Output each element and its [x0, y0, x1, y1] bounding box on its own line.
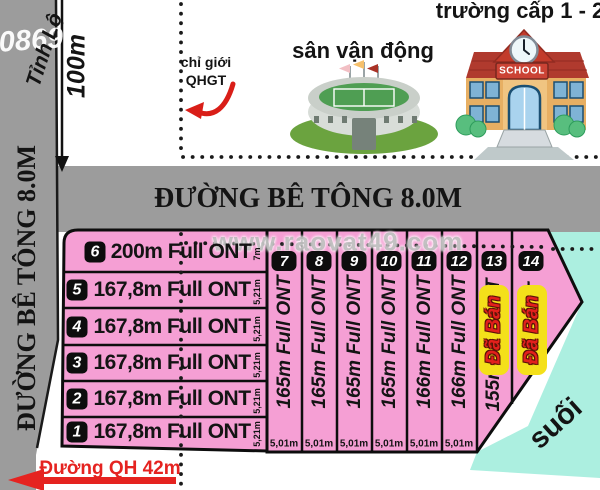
school-label: trường cấp 1 - 2	[436, 0, 600, 24]
plot-5-label: 167,8m Full ONT	[93, 278, 250, 302]
plot-7-label: 165m Full ONT	[274, 275, 296, 408]
planned-road-label: Đường QH 42m	[39, 458, 180, 480]
boundary-arrow-icon	[185, 84, 233, 119]
school-icon	[456, 30, 589, 160]
plot-12-label: 166m Full ONT	[449, 275, 471, 408]
plot-9-label: 165m Full ONT	[344, 275, 366, 408]
school-sign-label: SCHOOL	[499, 66, 545, 77]
plot-2-badge: 2	[67, 389, 88, 410]
boundary-label-line1: chỉ giới	[181, 54, 231, 70]
plot-5-badge: 5	[67, 280, 88, 301]
distance-100m-label: 100m	[63, 34, 92, 98]
plot-1-width: 5,21m	[252, 421, 262, 447]
plot-6-width: 7m	[252, 247, 262, 260]
plot-9-width: 5,01m	[340, 439, 368, 450]
plot-6-badge: 6	[85, 242, 106, 263]
plot-6-label: 200m Full ONT	[111, 240, 252, 264]
stadium-icon	[290, 60, 438, 154]
plot-1-label: 167,8m Full ONT	[93, 420, 250, 444]
plot-11-width: 5,01m	[410, 439, 438, 450]
plot-10-label: 165m Full ONT	[379, 275, 401, 408]
plot-9-badge: 9	[342, 251, 367, 271]
plot-7-width: 5,01m	[270, 439, 298, 450]
land-plot-map: 0869 www.raovat49.com ĐƯỜNG BÊ TÔNG 8.0M…	[0, 0, 600, 490]
plot-3-badge: 3	[67, 353, 88, 374]
plot-12-width: 5,01m	[445, 439, 473, 450]
plot-10-badge: 10	[377, 251, 402, 271]
plot-12-badge: 12	[447, 251, 472, 271]
plot-5-width: 5,21m	[252, 279, 262, 305]
road-vertical-label: ĐƯỜNG BÊ TÔNG 8.0M	[12, 145, 42, 431]
plot-8-badge: 8	[307, 251, 332, 271]
plot-8-width: 5,01m	[305, 439, 333, 450]
stadium-label: sân vận động	[292, 38, 434, 64]
plot-8-label: 165m Full ONT	[309, 275, 331, 408]
plot-4-label: 167,8m Full ONT	[93, 315, 250, 339]
sold-sticker-plot-13: Đã Bán	[479, 285, 509, 375]
plot-7-badge: 7	[272, 251, 297, 271]
plot-3-width: 5,21m	[252, 352, 262, 378]
sold-sticker-label: Đã Bán	[483, 296, 506, 365]
plot-2-width: 5,21m	[252, 388, 262, 414]
plot-4-width: 5,21m	[252, 316, 262, 342]
sold-sticker-label: Đã Bán	[521, 296, 544, 365]
plot-1-badge: 1	[67, 422, 88, 443]
plot-3-label: 167,8m Full ONT	[93, 351, 250, 375]
plot-10-width: 5,01m	[375, 439, 403, 450]
plot-14-badge: 14	[519, 251, 544, 271]
road-horizontal-label: ĐƯỜNG BÊ TÔNG 8.0M	[154, 183, 462, 215]
plot-2-label: 167,8m Full ONT	[93, 387, 250, 411]
sold-sticker-plot-14: Đã Bán	[517, 285, 547, 375]
plot-11-label: 166m Full ONT	[414, 275, 436, 408]
plot-4-badge: 4	[67, 317, 88, 338]
plot-11-badge: 11	[412, 251, 437, 271]
boundary-label-line2: QHGT	[186, 72, 226, 88]
plot-13-badge: 13	[482, 251, 507, 271]
